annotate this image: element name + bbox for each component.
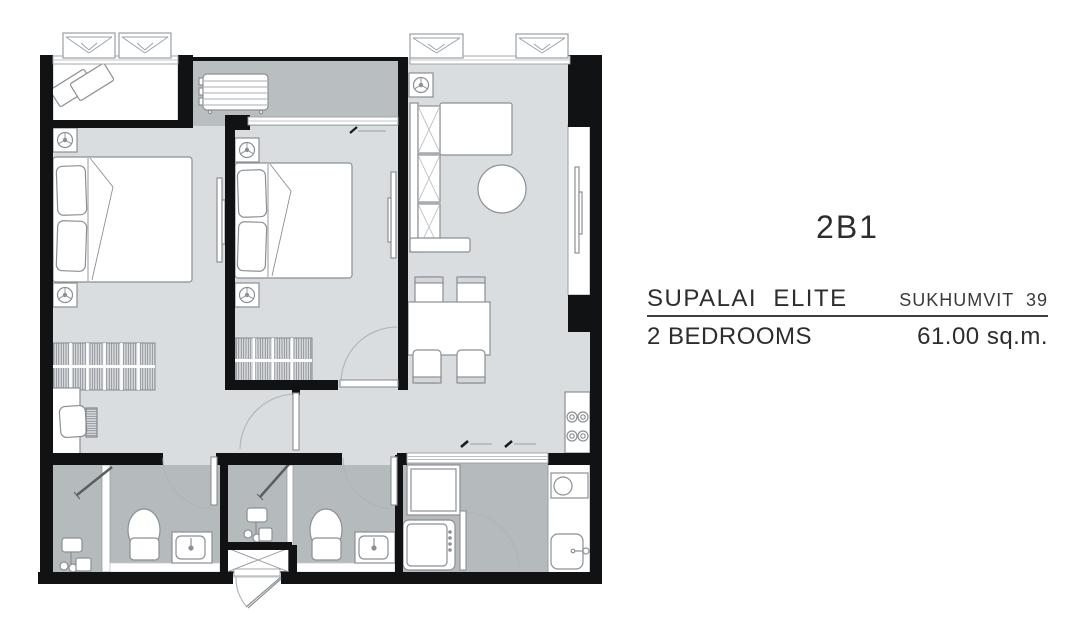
toilet-icon [310,509,342,560]
wall-bedroom2 [225,115,250,130]
wall-entry [222,542,292,550]
unit-area: 61.00 sq.m. [917,323,1048,351]
dining-table-icon [408,302,490,355]
wall-corridor-south [216,453,342,465]
bed-icon [53,157,192,282]
project-location: SUKHUMVIT 39 [899,290,1048,311]
balcony-vent-icon [63,33,115,58]
wall-right [568,295,602,332]
entry-threshold [234,569,280,576]
spec-row: 2 BEDROOMS 61.00 sq.m. [647,323,1048,351]
floorplan-page: 2B1 SUPALAI ELITE SUKHUMVIT 39 2 BEDROOM… [0,0,1080,640]
info-panel: 2B1 SUPALAI ELITE SUKHUMVIT 39 2 BEDROOM… [647,205,1048,355]
wardrobe-icon [53,343,155,390]
bathroom-sink-icon [355,532,395,563]
divider-line [647,315,1048,317]
wall-entry [289,545,297,584]
wall-alcove [53,120,180,128]
wall-bottom [281,572,602,584]
bathroom-sink-icon [172,532,212,563]
unit-type: 2 BEDROOMS [647,323,812,351]
wall-corridor-south [40,453,163,465]
dining-chair-icon [413,350,441,383]
wardrobe-icon [235,338,312,383]
vanity-ledge-2 [293,563,395,572]
ac-condenser-icon [199,74,268,114]
entry-door-swing-icon [236,577,281,608]
unit-code: 2B1 [647,209,1048,246]
lamp-table-icon [53,128,77,152]
wall-ledge-edge [193,57,400,61]
lamp-table-icon [409,73,433,97]
wall-stub [178,55,193,128]
entry-mat-icon [227,548,289,572]
shower-screen-2 [287,465,293,545]
shower-screen-1 [102,465,110,572]
wall-bedroom2-south [227,380,338,390]
lamp-table-icon [53,283,77,307]
sliding-door-track [407,453,548,463]
balcony-ledges [63,33,568,58]
project-row: SUPALAI ELITE SUKHUMVIT 39 [647,285,1048,313]
project-name: SUPALAI ELITE [647,285,848,313]
bed-icon [235,163,352,278]
wall-left [40,55,53,584]
kitchen-sink-icon [551,473,588,498]
wall-between-bedrooms [225,128,235,390]
balcony-vent-icon [119,33,171,58]
wall-corridor-south [548,453,602,465]
balcony-vent-icon [410,34,463,58]
wall-bath-divider [220,455,228,584]
vanity-ledge-1 [110,563,220,572]
balcony-vent-icon [516,34,568,58]
toilet-icon [128,509,160,560]
lamp-table-icon [235,283,259,307]
round-table-icon [478,165,526,213]
stove-icon [565,392,590,453]
wall-bottom [38,572,233,584]
wall-living [398,57,408,390]
lamp-table-icon [235,138,259,162]
washing-machine-icon [403,520,455,570]
wall-right [568,55,602,127]
fridge-icon [407,465,460,515]
sink-basin-icon [551,534,589,569]
dining-chair-icon [457,350,485,383]
wall-right [590,127,602,295]
